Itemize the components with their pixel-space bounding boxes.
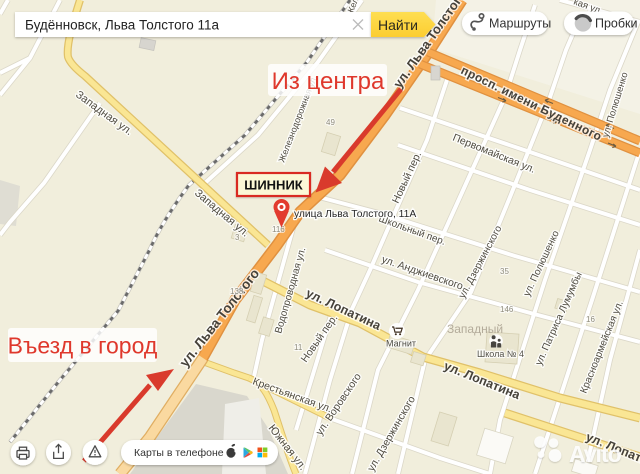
svg-text:Маршруты: Маршруты	[489, 17, 551, 31]
svg-text:Западный: Западный	[447, 322, 503, 336]
svg-text:116: 116	[272, 225, 285, 234]
svg-text:16: 16	[586, 315, 595, 324]
svg-text:Школа № 4: Школа № 4	[477, 349, 524, 359]
svg-text:Карты в телефоне: Карты в телефоне	[134, 447, 224, 459]
svg-text:3: 3	[235, 233, 240, 242]
svg-text:ШИННИК: ШИННИК	[244, 178, 303, 193]
svg-text:Найти: Найти	[378, 17, 418, 33]
svg-text:улица Льва Толстого, 11А: улица Льва Толстого, 11А	[294, 209, 416, 220]
svg-text:Будённовск, Льва Толстого 11а: Будённовск, Льва Толстого 11а	[25, 18, 219, 33]
svg-text:49: 49	[326, 118, 335, 127]
svg-text:11: 11	[294, 343, 303, 352]
svg-text:Пробки: Пробки	[595, 17, 638, 31]
svg-text:Из центра: Из центра	[272, 68, 385, 95]
svg-text:Avito: Avito	[569, 441, 622, 467]
svg-text:146: 146	[500, 305, 514, 314]
svg-text:35: 35	[500, 267, 509, 276]
svg-text:Магнит: Магнит	[386, 339, 416, 349]
svg-text:Въезд в город: Въезд в город	[8, 333, 158, 359]
svg-text:138: 138	[230, 287, 244, 296]
